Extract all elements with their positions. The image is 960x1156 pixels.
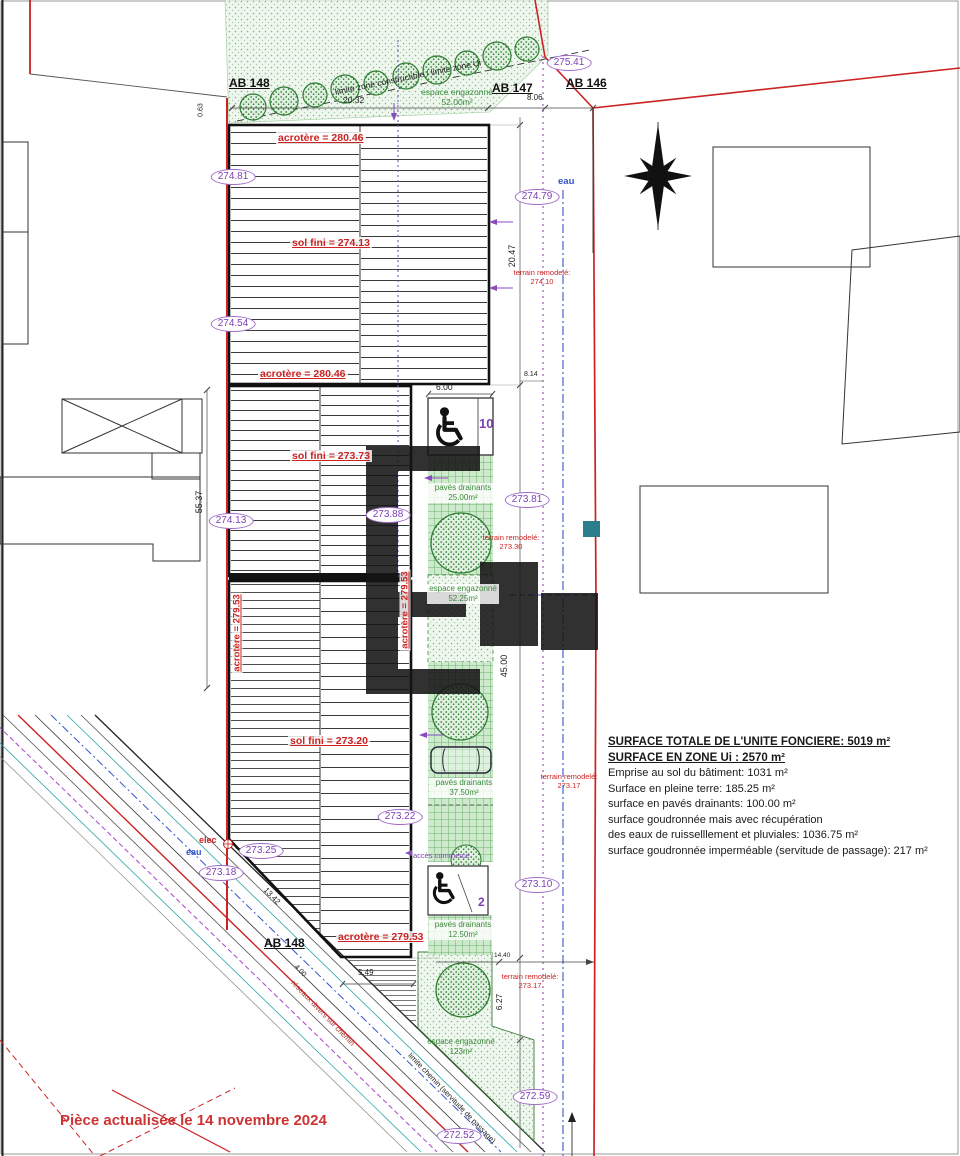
parcel-label-ab148-bottom: AB 148 xyxy=(264,936,305,950)
level-oval: 273.88 xyxy=(366,507,411,523)
level-oval: 272.52 xyxy=(437,1128,482,1144)
dim-label: 55.37 xyxy=(194,491,204,514)
dim-label: 8.06 xyxy=(527,93,543,102)
surface-zone: SURFACE EN ZONE Ui : 2570 m² xyxy=(608,751,950,767)
level-oval: 274.13 xyxy=(209,513,254,529)
parking-count: 2 xyxy=(478,895,485,909)
revision-date-note: Pièce actualisée le 14 novembre 2024 xyxy=(60,1112,327,1129)
espace-engazonne-label: espace engazonné52.00m² xyxy=(413,87,501,107)
bottom-arrow xyxy=(568,1112,576,1156)
eau-label: eau xyxy=(558,176,574,187)
paves-drainants-label: pavés drainants25.00m² xyxy=(427,483,499,503)
dim-label: 6.27 xyxy=(494,994,504,1011)
red-survey-lines xyxy=(0,1040,235,1156)
sol-fini-label: sol fini = 273.20 xyxy=(288,735,370,747)
dim-label: 6.00 xyxy=(436,382,453,392)
acces-commerce-label: accès commerce xyxy=(413,851,470,860)
parcel-label-ab146: AB 146 xyxy=(566,76,607,90)
dim-label: 20.32 xyxy=(343,95,364,105)
dim-label: 20.47 xyxy=(507,245,517,268)
paves-drainants-label: pavés drainants12.50m² xyxy=(429,920,497,940)
level-oval: 273.18 xyxy=(199,865,244,881)
espace-engazonne-label: espace engazonné52.25m² xyxy=(427,584,499,604)
acrotere-label-vertical: acrotère = 279.53 xyxy=(232,592,243,673)
compass-icon xyxy=(621,122,695,230)
terrain-note: terrain remodelé:274.10 xyxy=(504,268,580,286)
dim-label: 14.40 xyxy=(494,952,510,959)
parcel-label-ab148-top: AB 148 xyxy=(229,76,270,90)
level-oval: 274.81 xyxy=(211,169,256,185)
dim-label: 0.63 xyxy=(198,103,205,117)
terrain-note: terrain remodelé:273.17 xyxy=(494,972,566,990)
parking-count: 10 xyxy=(479,416,493,431)
acrotere-label-vertical: acrotère = 279.53 xyxy=(400,569,411,650)
terrain-note: terrain remodelé:273.17 xyxy=(538,772,600,790)
elec-symbol xyxy=(224,840,233,849)
dim-label: 8.14 xyxy=(524,371,538,378)
eau-label: eau xyxy=(186,847,202,857)
acrotere-label: acrotère = 280.46 xyxy=(258,368,348,380)
site-plan: AB 148 AB 147 AB 146 AB 148 limite zone … xyxy=(0,0,960,1156)
dim-label: 5.49 xyxy=(358,968,374,977)
level-oval: 275.41 xyxy=(547,55,592,71)
level-oval: 274.79 xyxy=(515,189,560,205)
level-oval: 274.54 xyxy=(211,316,256,332)
plan-linework xyxy=(0,0,960,1156)
level-oval: 273.81 xyxy=(505,492,550,508)
surface-total: SURFACE TOTALE DE L'UNITE FONCIERE: 5019… xyxy=(608,735,950,751)
sol-fini-label: sol fini = 273.73 xyxy=(290,450,372,462)
acrotere-label: acrotère = 279.53 xyxy=(336,931,426,943)
espace-engazonne-label: espace engazonné123m² xyxy=(427,1037,495,1057)
surface-summary: SURFACE TOTALE DE L'UNITE FONCIERE: 5019… xyxy=(608,735,950,859)
terrain-note: terrain remodelé:273.30 xyxy=(478,533,544,551)
level-oval: 272.59 xyxy=(513,1089,558,1105)
paves-drainants-label: pavés drainants37.50m² xyxy=(429,778,499,798)
level-oval: 273.10 xyxy=(515,877,560,893)
elec-label: elec xyxy=(199,835,217,845)
level-oval: 273.22 xyxy=(378,809,423,825)
level-oval: 273.25 xyxy=(239,843,284,859)
acrotere-label: acrotère = 280.46 xyxy=(276,132,366,144)
dim-label: 45.00 xyxy=(499,655,509,678)
building-block-north xyxy=(229,125,489,384)
sol-fini-label: sol fini = 274.13 xyxy=(290,237,372,249)
teal-marker xyxy=(583,521,600,537)
